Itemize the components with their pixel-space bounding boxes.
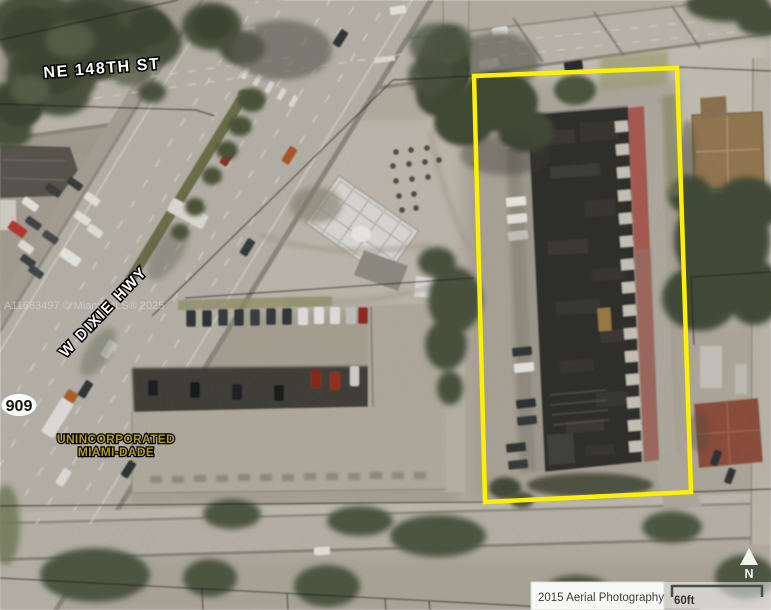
svg-text:909: 909 [6, 398, 33, 415]
svg-text:60ft: 60ft [674, 595, 695, 607]
svg-text:N: N [744, 567, 753, 581]
svg-text:UNINCORPORATED: UNINCORPORATED [57, 432, 175, 446]
svg-text:2015 Aerial Photography: 2015 Aerial Photography [538, 592, 664, 604]
svg-text:MIAMI-DADE: MIAMI-DADE [78, 445, 154, 459]
svg-text:A11683497 © Miami MLS® 2025: A11683497 © Miami MLS® 2025 [4, 300, 164, 312]
